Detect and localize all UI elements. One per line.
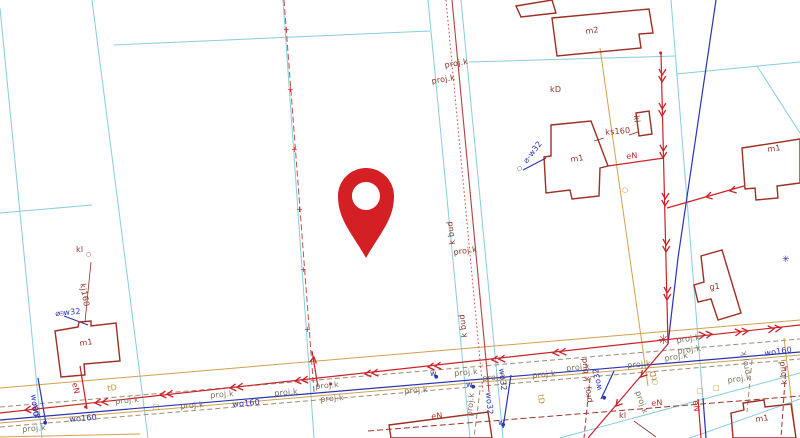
building-m1-left xyxy=(55,321,120,377)
cadastral-map[interactable]: proj.kproj.km2kDks160klm1⌀-w32eNm1g1klkj… xyxy=(0,0,800,438)
building-g1 xyxy=(694,250,741,320)
building-m1-mid xyxy=(544,121,608,199)
building-small-top xyxy=(516,0,556,17)
map-linework xyxy=(0,0,800,438)
parcel-boundary-lines xyxy=(0,0,800,438)
building-bottom-right xyxy=(731,400,796,438)
kl-cabinet-box xyxy=(636,111,652,136)
building-m2 xyxy=(552,9,653,56)
location-pin[interactable] xyxy=(338,168,394,258)
building-m1-right xyxy=(742,139,800,200)
